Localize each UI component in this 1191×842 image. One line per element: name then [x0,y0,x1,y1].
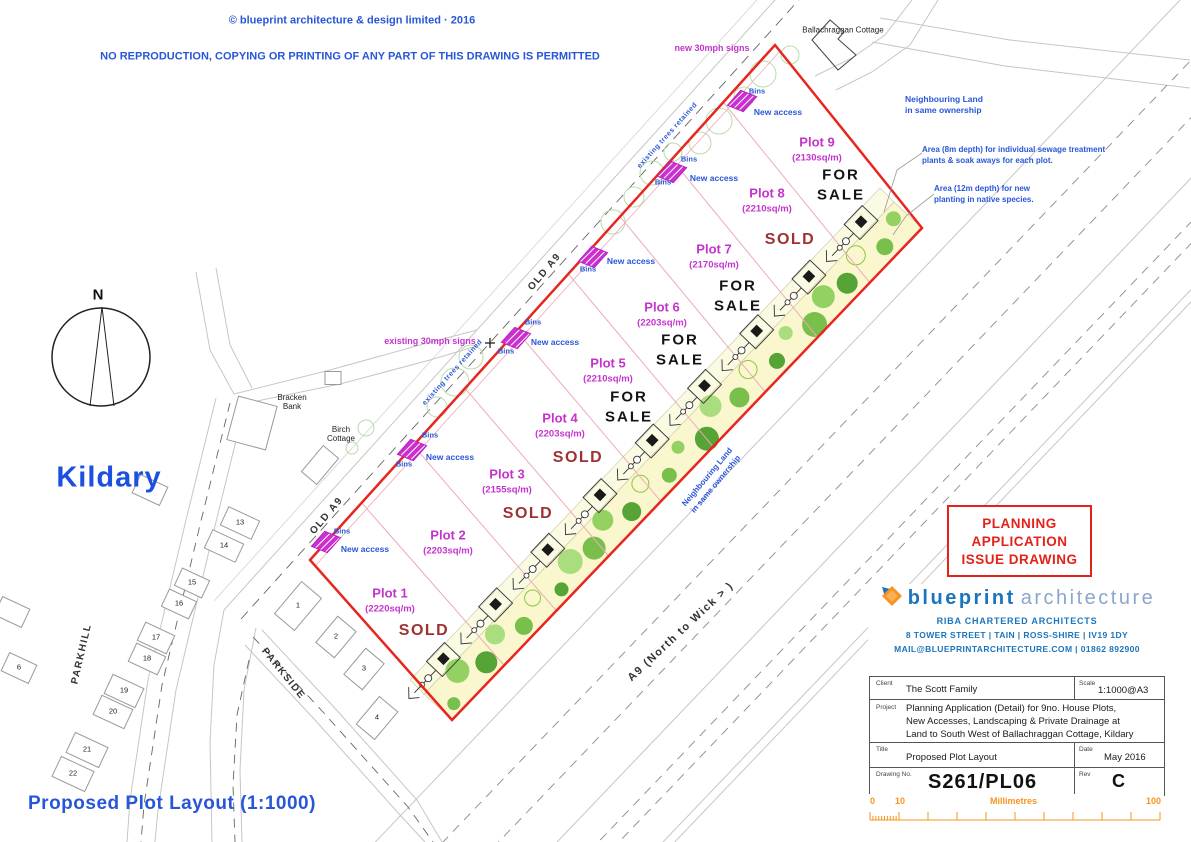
house-number: 19 [120,687,128,696]
title-value: Proposed Plot Layout [906,752,997,763]
scale-value: 1:1000@A3 [1098,685,1148,696]
house-number: 16 [175,600,183,609]
house-number: 6 [17,664,21,673]
bins-label: Bins [681,156,697,165]
plot-status-label: FOR SALE [647,331,713,370]
project-label: Project [876,704,896,711]
plot-area-label: (2203sq/m) [637,319,687,330]
firm-tagline: RIBA CHARTERED ARCHITECTS [868,616,1166,626]
copyright-line: © blueprint architecture & design limite… [229,15,476,28]
plot-area-label: (2170sq/m) [689,261,739,272]
plot-area-label: (2155sq/m) [482,486,532,497]
house-number: 17 [152,634,160,643]
firm-contact: MAIL@BLUEPRINTARCHITECTURE.COM | 01862 8… [868,644,1166,654]
planting-area-note: Area (12m depth) for new planting in nat… [934,184,1034,206]
plot-label: Plot 4 [542,412,577,427]
plot-label: Plot 6 [644,301,679,316]
house-number: 22 [69,770,77,779]
drawing-no-value: S261/PL06 [928,771,1037,794]
bins-label: Bins [580,266,596,275]
plot-label: Plot 8 [749,187,784,202]
new-access-label: New access [531,338,579,348]
north-label: N [93,286,104,303]
plot-status-label: FOR SALE [596,388,662,427]
plot-status-label: SOLD [399,622,449,640]
scale-label: Scale [1079,680,1095,687]
new-access-label: New access [607,257,655,267]
house-number: 4 [375,714,379,723]
new-access-label: New access [426,453,474,463]
no-reproduction-notice: NO REPRODUCTION, COPYING OR PRINTING OF … [100,51,600,64]
north-arrow [52,307,150,406]
new-access-label: New access [754,108,802,118]
plot-status-label: FOR SALE [808,166,874,205]
sewage-area-note: Area (8m depth) for individual sewage tr… [922,145,1105,167]
project-line-1: Planning Application (Detail) for 9no. H… [906,703,1116,714]
plot-area-label: (2203sq/m) [535,430,585,441]
plot-status-label: SOLD [553,449,603,467]
project-line-3: Land to South West of Ballachraggan Cott… [906,729,1133,740]
house-number: 14 [220,542,228,551]
titleblock-row-title: Title Proposed Plot Layout Date May 2016 [870,743,1164,768]
title-block: Client The Scott Family Scale 1:1000@A3 … [869,676,1165,796]
plot-area-label: (2210sq/m) [742,205,792,216]
titleblock-row-client: Client The Scott Family Scale 1:1000@A3 [870,677,1164,700]
house-number: 2 [334,633,338,642]
firm-address: 8 TOWER STREET | TAIN | ROSS-SHIRE | IV1… [868,630,1166,640]
scalebar-hundred: 100 [1146,796,1161,806]
plot-label: Plot 1 [372,587,407,602]
project-line-2: New Accesses, Landscaping & Private Drai… [906,716,1120,727]
bins-label: Bins [749,88,765,97]
drawing-title-footer: Proposed Plot Layout (1:1000) [28,793,316,815]
titleblock-row-project: Project Planning Application (Detail) fo… [870,700,1164,743]
plot-area-label: (2203sq/m) [423,547,473,558]
scalebar-ruler [868,808,1164,824]
house-number: 21 [83,746,91,755]
house-number: 20 [109,708,117,717]
plot-label: Plot 5 [590,357,625,372]
title-label: Title [876,746,888,753]
scalebar-unit: Millimetres [990,796,1037,806]
date-label: Date [1079,746,1093,753]
bins-label: Bins [334,528,350,537]
new-access-label: New access [341,545,389,555]
plot-label: Plot 7 [696,243,731,258]
plot-area-label: (2210sq/m) [583,375,633,386]
plot-status-label: FOR SALE [705,277,771,316]
firm-name-bold: blueprint [908,587,1016,610]
plot-label: Plot 3 [489,468,524,483]
building-label-birch-cottage: Birch Cottage [327,425,355,443]
existing-30mph-label: existing 30mph signs [384,336,476,346]
plot-area-label: (2220sq/m) [365,605,415,616]
house-number: 18 [143,655,151,664]
client-label: Client [876,680,893,687]
rev-value: C [1112,771,1126,792]
building-label-ballachraggan: Ballachraggan Cottage [802,25,883,34]
plot-area-label: (2130sq/m) [792,154,842,165]
scalebar-ten: 10 [895,796,905,806]
drawing-no-label: Drawing No. [876,771,912,778]
town-label: Kildary [56,461,161,494]
rev-label: Rev [1079,771,1091,778]
firm-logo-icon [879,584,903,613]
plot-status-label: SOLD [765,231,815,249]
client-value: The Scott Family [906,684,977,695]
bins-label: Bins [498,348,514,357]
plot-status-label: SOLD [503,505,553,523]
firm-name-light: architecture [1021,587,1156,610]
building-label-bracken-bank: Bracken Bank [277,393,306,411]
bins-label: Bins [422,432,438,441]
planning-stamp: PLANNING APPLICATION ISSUE DRAWING [947,505,1092,577]
neighbouring-land-note-top: Neighbouring Land in same ownership [905,94,983,117]
plot-label: Plot 9 [799,136,834,151]
scalebar-zero: 0 [870,796,875,806]
new-access-label: New access [690,174,738,184]
bins-label: Bins [655,179,671,188]
date-value: May 2016 [1104,752,1146,763]
bins-label: Bins [525,319,541,328]
bins-label: Bins [396,461,412,470]
plot-label: Plot 2 [430,529,465,544]
titleblock-row-drawing: Drawing No. S261/PL06 Rev C [870,768,1164,795]
house-number: 3 [362,665,366,674]
house-number: 13 [236,519,244,528]
drawing-canvas: © blueprint architecture & design limite… [0,0,1191,842]
house-number: 15 [188,579,196,588]
scale-bar: 0 10 Millimetres 100 [868,794,1164,824]
house-number: 1 [296,602,300,611]
new-30mph-label: new 30mph signs [674,43,749,53]
firm-block: blueprintarchitecture RIBA CHARTERED ARC… [868,584,1166,654]
